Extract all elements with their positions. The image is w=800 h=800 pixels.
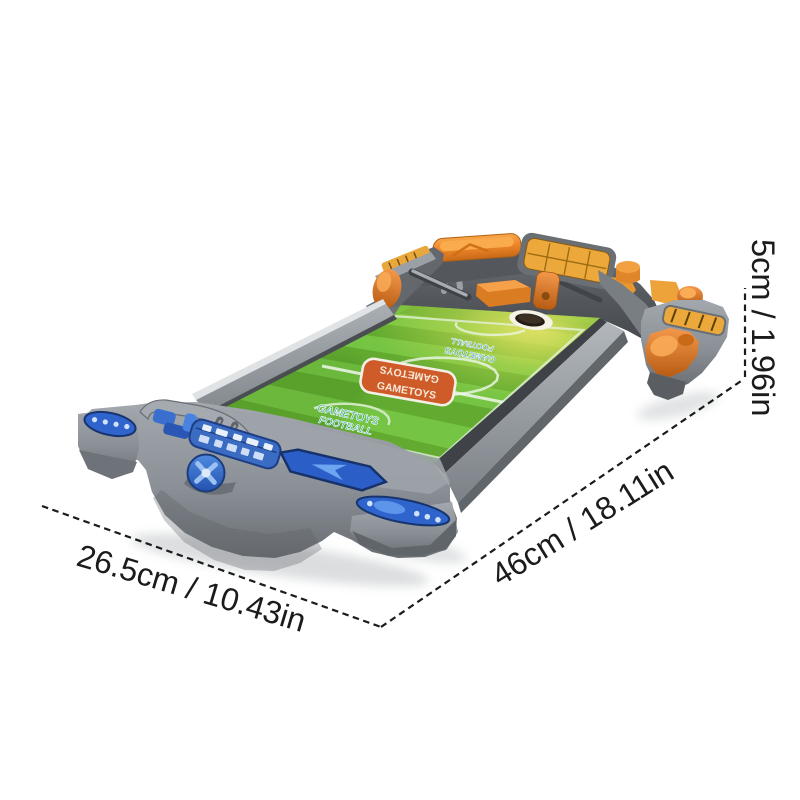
svg-text:5cm / 1.96in: 5cm / 1.96in — [745, 239, 782, 416]
